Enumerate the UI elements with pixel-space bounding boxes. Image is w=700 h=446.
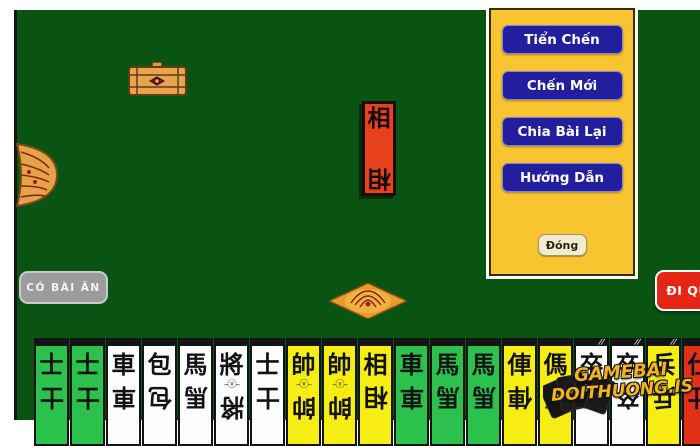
hand-card[interactable]: 包包: [142, 338, 177, 446]
card-character: 士: [256, 350, 280, 380]
player-hand: 士士士士車車包包馬馬將–ⓥ–將士士帥–ⓥ–帥帥–ⓥ–帥相相車車馬馬馬馬俥俥傌傌/…: [34, 338, 700, 446]
card-top-bar: [504, 340, 535, 346]
card-top-bar: //: [648, 340, 679, 346]
menu-button-tien-chen[interactable]: Tiển Chến: [502, 25, 623, 54]
menu-button-chia-bai-lai[interactable]: Chia Bài Lại: [502, 117, 623, 146]
card-character: 包: [148, 350, 172, 380]
card-top-bar: //: [612, 340, 643, 346]
card-character-inverted: 士: [76, 382, 100, 412]
menu-button-chen-moi[interactable]: Chến Mới: [502, 71, 623, 100]
pass-button[interactable]: ĐI QUA: [655, 270, 700, 311]
card-character-inverted: 仕: [688, 382, 700, 412]
card-character-inverted: 馬: [472, 382, 496, 412]
card-character-inverted: 車: [112, 382, 136, 412]
close-button[interactable]: Đóng: [538, 234, 587, 256]
tile-character-top: 相: [368, 108, 391, 131]
hand-card[interactable]: 相相: [358, 338, 393, 446]
card-top-bar: [360, 340, 391, 346]
card-character: 將: [220, 350, 244, 380]
hand-card[interactable]: 士士: [70, 338, 105, 446]
card-top-bar: [396, 340, 427, 346]
flower-decoration: [15, 142, 59, 208]
treasure-chest-icon: [128, 62, 187, 97]
card-character: 車: [400, 350, 424, 380]
card-character: 卒: [616, 350, 640, 380]
hand-card[interactable]: 傌傌: [538, 338, 573, 446]
card-character: 馬: [436, 350, 460, 380]
hand-card[interactable]: 將–ⓥ–將: [214, 338, 249, 446]
card-top-bar: [288, 340, 319, 346]
card-character-inverted: 包: [148, 382, 172, 412]
card-character: 傌: [544, 350, 568, 380]
card-top-bar: [180, 340, 211, 346]
card-character: 俥: [508, 350, 532, 380]
played-card-tile[interactable]: 相 相: [362, 101, 396, 196]
card-top-bar: [144, 340, 175, 346]
card-top-bar: [108, 340, 139, 346]
card-character-inverted: 卒: [616, 382, 640, 412]
card-character: 馬: [184, 350, 208, 380]
card-character: 帥: [292, 350, 316, 380]
card-top-bar: [432, 340, 463, 346]
hand-card[interactable]: 馬馬: [466, 338, 501, 446]
card-character: 相: [364, 350, 388, 380]
card-emblem-icon: –ⓥ–: [224, 380, 239, 390]
hand-card[interactable]: 帥–ⓥ–帥: [322, 338, 357, 446]
card-character-inverted: 士: [40, 382, 64, 412]
card-character: 士: [40, 350, 64, 380]
card-emblem-icon: –ⓥ–: [296, 380, 311, 390]
hand-card[interactable]: 馬馬: [178, 338, 213, 446]
card-top-bar: [324, 340, 355, 346]
card-character-inverted: 俥: [508, 382, 532, 412]
hand-card[interactable]: 俥俥: [502, 338, 537, 446]
card-character-inverted: 傌: [544, 382, 568, 412]
card-character-inverted: 卒: [580, 382, 604, 412]
hand-card[interactable]: 士士: [34, 338, 69, 446]
hand-card[interactable]: 帥–ⓥ–帥: [286, 338, 321, 446]
tile-character-bottom: 相: [368, 166, 391, 189]
card-character-inverted: 馬: [184, 382, 208, 412]
card-character-inverted: 相: [364, 382, 388, 412]
card-character: 車: [112, 350, 136, 380]
card-character-inverted: 將: [220, 392, 244, 422]
card-top-bar: [216, 340, 247, 346]
card-top-bar: [684, 340, 700, 346]
card-character: 卒: [580, 350, 604, 380]
eat-card-button[interactable]: CÓ BÀI ĂN: [19, 271, 108, 304]
card-character-inverted: 馬: [436, 382, 460, 412]
card-character-inverted: 帥: [292, 392, 316, 422]
card-top-bar: [36, 340, 67, 346]
hand-card[interactable]: //兵兵: [646, 338, 681, 446]
card-top-bar: [72, 340, 103, 346]
hand-card[interactable]: 馬馬: [430, 338, 465, 446]
card-top-bar: [468, 340, 499, 346]
hand-card[interactable]: //卒卒: [574, 338, 609, 446]
card-top-bar: //: [576, 340, 607, 346]
hand-card[interactable]: 車車: [394, 338, 429, 446]
card-character: 兵: [652, 350, 676, 380]
card-top-bar: [540, 340, 571, 346]
hand-card[interactable]: 仕仕: [682, 338, 700, 446]
diamond-decoration: [329, 283, 407, 319]
hand-card[interactable]: //卒卒: [610, 338, 645, 446]
hand-card[interactable]: 車車: [106, 338, 141, 446]
card-character-inverted: 士: [256, 382, 280, 412]
card-emblem-icon: –ⓥ–: [332, 380, 347, 390]
game-menu-panel: Tiển Chến Chến Mới Chia Bài Lại Hướng Dẫ…: [489, 8, 635, 276]
card-character-inverted: 兵: [652, 382, 676, 412]
card-character-inverted: 帥: [328, 392, 352, 422]
card-character: 仕: [688, 350, 700, 380]
menu-button-huong-dan[interactable]: Hướng Dẫn: [502, 163, 623, 192]
card-character: 帥: [328, 350, 352, 380]
card-top-bar: [252, 340, 283, 346]
hand-card[interactable]: 士士: [250, 338, 285, 446]
card-character: 馬: [472, 350, 496, 380]
card-character-inverted: 車: [400, 382, 424, 412]
card-character: 士: [76, 350, 100, 380]
